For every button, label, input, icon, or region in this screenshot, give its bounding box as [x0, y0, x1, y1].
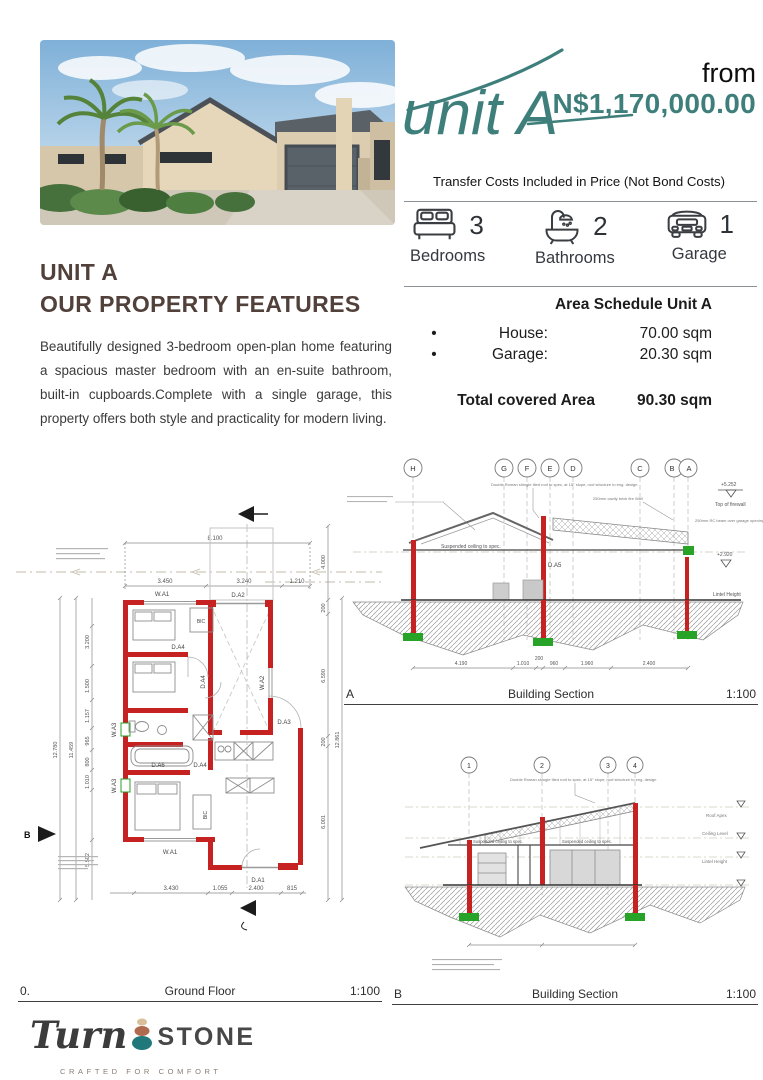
area-schedule-title: Area Schedule Unit A: [400, 296, 712, 314]
feature-garage: 1 Garage: [665, 206, 734, 268]
grid-b-4: 4: [633, 763, 637, 770]
building-section-b: 1 2 3 4 Double Roman shingle tiled roof …: [390, 745, 763, 985]
label-da3: D.A3: [277, 720, 291, 726]
label-bic1: BIC: [197, 619, 206, 625]
area-row-house: • House: 70.00 sqm: [400, 323, 712, 344]
label-wa3-a: W.A3: [112, 722, 118, 737]
grid-a-c: C: [637, 464, 643, 473]
label-da4-c: D.A4: [193, 763, 207, 769]
plan-dims-bottom: [110, 891, 306, 895]
dim-left-5: 1.010: [85, 775, 91, 789]
area-row-garage: • Garage: 20.30 sqm: [400, 344, 712, 365]
section-a-scale: 1:100: [619, 687, 756, 701]
dim-labels-a: 4.190 1.010 200 960 1.960 2.400: [455, 656, 656, 667]
ceiling-note-b2: Suspended ceiling to spec.: [562, 839, 612, 844]
section-b-title-row: B Building Section 1:100: [392, 987, 758, 1005]
logo-turn-text: Turn: [30, 1017, 127, 1054]
dim-a-1: 1.010: [517, 661, 530, 667]
bedrooms-count: 3: [469, 210, 483, 241]
building-section-a: H G F E D C B A Double Roman shingle til…: [343, 440, 763, 685]
garage-cross: [214, 612, 269, 730]
grid-a-e: E: [547, 464, 552, 473]
level-top-label: Top of firewall: [715, 502, 746, 508]
dim-right-3: 200: [321, 737, 327, 746]
section-a-title: Building Section: [483, 687, 620, 701]
bullet: •: [400, 344, 468, 365]
section-a-letter: A: [346, 687, 483, 701]
total-label: Total covered Area: [457, 392, 595, 410]
dim-right-1: 200: [321, 603, 327, 612]
label-bic2: BIC: [203, 810, 209, 819]
garage-area-value: 20.30 sqm: [548, 344, 712, 365]
bedrooms-label: Bedrooms: [410, 247, 485, 266]
dim-left-1: 1.500: [85, 679, 91, 693]
logo-tagline: CRAFTED FOR COMFORT: [60, 1067, 222, 1076]
left-note-a: [347, 496, 475, 530]
stacked-stones-icon: [129, 1016, 155, 1052]
dim-top-0: 3.450: [157, 579, 173, 585]
ground-floor-scale: 1:100: [260, 984, 380, 998]
dim-left-3: 965: [85, 736, 91, 745]
plan-dims-right: [326, 524, 344, 902]
ground-hatch-b: [405, 887, 745, 937]
roof-a: [409, 513, 688, 544]
ceiling-note-a: Suspended ceiling to spec.: [441, 544, 501, 550]
dim-left-4: 800: [85, 757, 91, 766]
ground-floor-number: 0.: [20, 984, 140, 998]
property-features: UNIT A OUR PROPERTY FEATURES Beautifully…: [40, 256, 392, 431]
lintel-label-b: Lintel Height: [702, 859, 728, 864]
dim-right-4: 6.001: [321, 815, 327, 829]
label-da2: D.A2: [231, 593, 245, 599]
label-da5: D.A5: [548, 563, 562, 569]
price-value: N$1,170,000.00: [553, 88, 756, 120]
dim-a-2: 200: [535, 656, 544, 662]
dim-right-0: 4.000: [321, 555, 327, 569]
header: unit A from N$1,170,000.00: [400, 36, 758, 196]
plan-left-dim-labels: 12.780 11.459 3.200 1.500 1.157 965 800 …: [53, 635, 91, 867]
bullet: •: [400, 323, 468, 344]
dim-a-0: 4.190: [455, 661, 468, 667]
dim-right-2: 6.590: [321, 669, 327, 683]
total-value: 90.30 sqm: [637, 392, 712, 410]
garage-count: 1: [720, 209, 734, 240]
dim-bottom-0: 3.430: [163, 886, 179, 892]
label-da4-a: D.A4: [171, 645, 185, 651]
feature-bedrooms: 3 Bedrooms: [410, 206, 485, 268]
label-wa1-top: W.A1: [155, 592, 170, 598]
dim-a-4: 1.960: [581, 661, 594, 667]
dim-left-inner: 11.459: [69, 742, 75, 758]
title-line2: OUR PROPERTY FEATURES: [40, 291, 361, 317]
section-b-scale: 1:100: [635, 987, 756, 1001]
label-da6: D.A6: [151, 763, 165, 769]
ceiling-note-b1: Suspended ceiling to spec.: [473, 839, 523, 844]
level-top-value: +5.252: [721, 482, 737, 488]
garage-label: Garage: [672, 245, 727, 264]
bathrooms-label: Bathrooms: [535, 249, 615, 268]
transfer-note: Transfer Costs Included in Price (Not Bo…: [400, 174, 758, 189]
grid-b-2: 2: [540, 763, 544, 770]
turnstone-logo: Turn STONE CRAFTED FOR COMFORT: [30, 1016, 290, 1078]
feature-bathrooms: 2 Bathrooms: [535, 206, 615, 268]
area-total-row: Total covered Area 90.30 sqm: [400, 392, 712, 410]
roof-note-b: Double Roman shingle tiled roof to spec,…: [510, 777, 656, 782]
grid-a-b: B: [669, 464, 674, 473]
level-markers-b: Roof Apex Ceiling Level Lintel Height: [702, 801, 745, 886]
label-da4-b: D.A4: [201, 675, 207, 689]
grid-a-h: H: [410, 464, 415, 473]
ground-floor-title: Ground Floor: [140, 984, 260, 998]
grid-a-d: D: [570, 464, 576, 473]
dim-right-overall: 12.861: [335, 732, 341, 749]
area-schedule: Area Schedule Unit A • House: 70.00 sqm …: [400, 296, 712, 410]
flyer-page: unit A from N$1,170,000.00 Transfer Cost…: [0, 0, 763, 1080]
grid-a-g: G: [501, 464, 507, 473]
ceiling-level-label: Ceiling Level: [702, 831, 728, 836]
grid-a-f: F: [525, 464, 530, 473]
label-da1: D.A1: [251, 878, 265, 884]
dims-b: [467, 943, 637, 947]
car-icon: [665, 206, 709, 242]
page-title: UNIT A OUR PROPERTY FEATURES: [40, 256, 392, 320]
grounds: [40, 184, 395, 225]
label-wa1-bottom: W.A1: [163, 850, 178, 856]
grid-b-3: 3: [606, 763, 610, 770]
title-line1: UNIT A: [40, 259, 118, 285]
ground-floor-title-row: 0. Ground Floor 1:100: [18, 984, 382, 1002]
bed-icon: [411, 206, 458, 244]
section-b-title: Building Section: [515, 987, 636, 1001]
grid-b-1: 1: [467, 763, 471, 770]
dim-left-2: 1.157: [85, 709, 91, 723]
dim-a-3: 960: [550, 661, 559, 667]
roof-note-leader: [533, 488, 539, 518]
section-b-letter: B: [394, 987, 515, 1001]
logo-stone-text: STONE: [157, 1025, 255, 1050]
features-row: 3 Bedrooms 2 Bathrooms: [400, 206, 756, 268]
ground-floor-plan: 8.100 3.450 3.240 1.210 12.780 11.459 3.…: [10, 430, 385, 982]
fire-wall-leader: [643, 502, 673, 520]
dim-left-overall: 12.780: [53, 742, 59, 759]
dim-bottom-2: 2.400: [248, 886, 264, 892]
plan-dims-top: [123, 541, 312, 590]
rc-beam-note: 250mm RC beam over garage opening, Plast…: [695, 518, 763, 523]
plan-right-dim-labels: 4.000 200 6.590 200 6.001 12.861: [321, 555, 341, 829]
grid-a-a: A: [686, 464, 691, 473]
dim-top-2: 1.210: [289, 579, 305, 585]
furniture: [129, 608, 274, 830]
bath-icon: [542, 206, 582, 246]
divider-top: [404, 201, 757, 202]
b-marker-letter: B: [24, 830, 31, 840]
level-lintel-value: +2.920: [717, 552, 733, 558]
note-lines-b: [432, 959, 502, 970]
fire-wall-note: 250mm cavity brick fire Wall: [593, 496, 643, 501]
house-value: 70.00 sqm: [548, 323, 712, 344]
house-label: House:: [468, 323, 548, 344]
micro-note-top: [56, 548, 108, 559]
roof-apex-label: Roof Apex: [706, 813, 728, 818]
section-a-title-row: A Building Section 1:100: [344, 687, 758, 705]
garage-area-label: Garage:: [468, 344, 548, 365]
bathrooms-count: 2: [593, 211, 607, 242]
property-photo: [40, 40, 395, 225]
level-markers-a: +5.252 Top of firewall +2.920 Lintel Hei…: [713, 482, 746, 598]
dim-top-1: 3.240: [236, 579, 252, 585]
label-wa3-b: W.A3: [112, 778, 118, 793]
roof-note-leader-b: [575, 783, 595, 803]
lintel-label-a: Lintel Height: [713, 592, 741, 598]
dim-bottom-1: 1.055: [212, 886, 228, 892]
dim-left-0: 3.200: [85, 635, 91, 649]
roof-note-a: Double Roman shingle tiled roof to spec,…: [491, 482, 637, 487]
dim-a-5: 2.400: [643, 661, 656, 667]
property-description: Beautifully designed 3-bedroom open-plan…: [40, 335, 392, 430]
interior-b: [478, 845, 620, 885]
dim-bottom-3: 815: [287, 886, 298, 892]
boundary-lines: [16, 569, 382, 582]
label-wa2: W.A2: [260, 675, 266, 690]
divider-bottom: [404, 286, 757, 287]
from-label: from: [702, 58, 756, 89]
